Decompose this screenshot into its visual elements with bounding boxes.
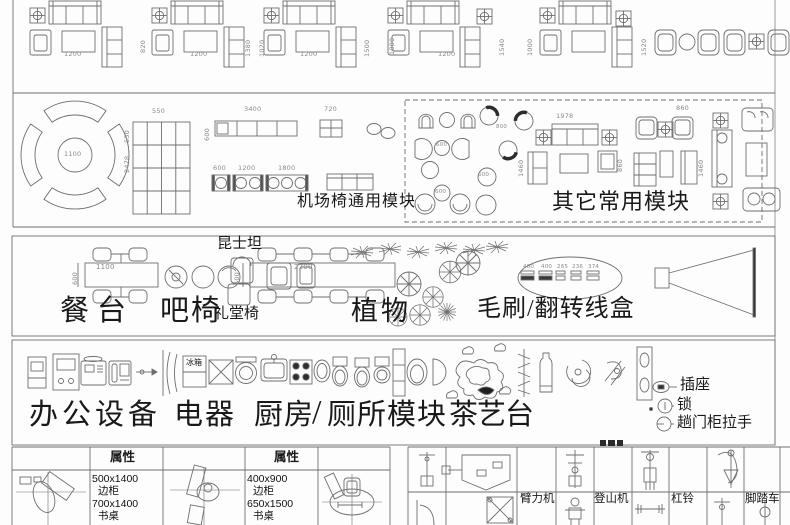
misc-sofa-set-corner <box>712 108 780 211</box>
cad-block-library-sheet: 1200 820 1200 1380 1020 1200 1500 1080 1… <box>0 0 790 525</box>
kunshitan-label: 昆士坦 <box>217 237 262 252</box>
dim-label: 1000 <box>527 39 534 56</box>
office-equipment-icons <box>28 350 177 396</box>
socket-label: 插座 <box>680 378 710 393</box>
dim-label: 600 <box>478 173 489 179</box>
seat-grid-block <box>133 122 190 214</box>
desk-drawing-1 <box>16 472 86 525</box>
dim-label: 1200 <box>438 51 455 58</box>
property-header: 属性 <box>274 451 299 464</box>
gym-label-arm-machine: 臂力机 <box>520 494 555 506</box>
dim-label: 1800 <box>278 165 295 172</box>
dining-table-label: 餐台 <box>60 297 134 326</box>
misc-sofa-set-center <box>528 124 617 184</box>
dim-label: 600 <box>436 143 447 149</box>
kitchen-icons <box>261 355 330 385</box>
dining-table-2200 <box>243 248 395 303</box>
office-equipment-label: 办公设备 <box>29 401 161 430</box>
dim-label: 374 <box>588 265 599 271</box>
dim-label: 1380 <box>245 40 252 57</box>
property-header: 属性 <box>110 451 135 464</box>
sliding-door-handle-label: 趟门柜拉手 <box>677 416 752 431</box>
dim-label: 2200 <box>294 264 313 271</box>
dim-label: 1200 <box>300 51 317 58</box>
misc-module-label: 其它常用模块 <box>552 191 690 213</box>
dim-label: 600 <box>234 272 241 285</box>
s-shape-seat <box>367 124 395 139</box>
slash-separator: / <box>312 396 321 430</box>
tea-table-icons <box>446 344 652 400</box>
dim-label: 600 <box>204 128 211 141</box>
long-bench-3400 <box>215 121 297 136</box>
dim-label: 400 <box>523 265 534 271</box>
gym-label-climber: 登山机 <box>594 494 629 506</box>
dim-label: 860 <box>617 159 624 172</box>
dim-label: 720 <box>324 106 337 113</box>
wc-module-label: 厕所模块 <box>327 401 447 430</box>
dim-label: 1540 <box>499 39 506 56</box>
dim-label: 600 <box>213 165 226 172</box>
appliance-label: 电器 <box>174 401 236 430</box>
dim-label: 1978 <box>556 113 573 120</box>
misc-sofa-set-right <box>634 117 697 186</box>
projector <box>655 248 756 317</box>
wc-icons <box>333 349 447 396</box>
bench-row <box>212 174 373 191</box>
armchair-pair-round-table <box>655 30 719 55</box>
fridge-label: 冰箱 <box>186 359 202 367</box>
legend-icons <box>650 382 678 432</box>
dim-label: 600 <box>435 190 446 196</box>
dim-label: 1020 <box>259 40 266 57</box>
dim-label: 1500 <box>364 40 371 57</box>
plant-sprigs <box>351 241 508 258</box>
dim-label: 400 <box>541 265 552 271</box>
dim-label: 1200 <box>238 165 255 172</box>
dim-label: 3400 <box>244 106 261 113</box>
property-cell-desk2: 400x900 边柜 650x1500 书桌 <box>247 473 293 523</box>
dim-label: 1080 <box>389 38 396 55</box>
dim-label: 236 <box>572 265 583 271</box>
armchair-pair-square-table <box>724 30 789 55</box>
dim-label: 800 <box>496 125 507 131</box>
desk-drawing-2 <box>170 465 240 525</box>
dim-label: 1520 <box>641 39 648 56</box>
gym-label-barbell: 杠铃 <box>671 494 694 506</box>
sofa-sets-row <box>30 1 789 67</box>
dim-label: 1200 <box>190 51 207 58</box>
dim-label: 1460 <box>518 160 525 177</box>
dim-label: 600 <box>72 272 79 285</box>
dim-label: 2478 <box>124 156 131 173</box>
dim-label: 1460 <box>698 160 705 177</box>
gym-label-bicycle: 脚踏车 <box>745 494 780 506</box>
dim-label: 1100 <box>96 264 115 271</box>
property-cell-desk1: 500x1400 边柜 700x1400 书桌 <box>92 473 138 523</box>
brush-flipbox-label: 毛刷/翻转线盒 <box>477 297 635 321</box>
tea-table-label: 茶艺台 <box>449 401 533 430</box>
dim-label: 820 <box>140 40 147 53</box>
airport-module-label: 机场椅通用模块 <box>297 194 416 210</box>
lock-label: 锁 <box>677 398 692 413</box>
plants-label: 植物 <box>351 298 411 325</box>
bar-chair-label: 吧椅 <box>160 297 222 326</box>
cad-line-drawing <box>0 0 790 525</box>
kitchen-label: 厨房 <box>254 401 314 430</box>
dim-label: 265 <box>557 265 568 271</box>
dim-label: 550 <box>152 108 165 115</box>
dim-label: 860 <box>676 105 689 112</box>
dim-label: 1100 <box>64 151 81 158</box>
gym-grid <box>408 440 790 525</box>
dim-label: 550 <box>124 130 131 143</box>
gym-equipment-icons <box>417 450 770 525</box>
single-seat-720 <box>320 120 342 137</box>
desk-drawing-3 <box>322 473 382 525</box>
auditorium-chair-label: 礼堂椅 <box>214 307 259 322</box>
dim-label: 1200 <box>64 51 81 58</box>
